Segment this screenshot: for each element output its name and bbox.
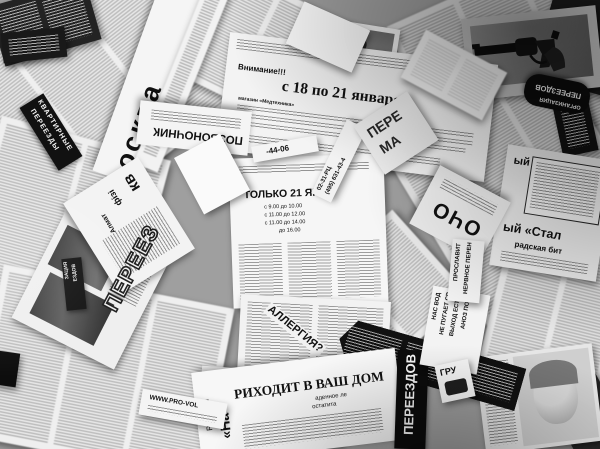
face-portrait-photo	[513, 348, 599, 447]
headline-kv: кв	[121, 171, 144, 195]
text-column	[238, 243, 283, 301]
text-column	[8, 34, 59, 55]
caption-lines	[242, 408, 384, 449]
headline-stal: ый «Стал	[502, 221, 562, 243]
schedule-line: с 11.00 до 12.00	[264, 212, 305, 219]
fake-text-columns	[238, 240, 381, 302]
fragment-vyhod: ВЫХОД ЕСТЬ	[449, 296, 462, 337]
schedule-line: до 16.00	[279, 228, 301, 234]
phone-fragment: -44-06	[266, 144, 290, 156]
ad-box	[524, 156, 600, 225]
dark-blob	[444, 378, 468, 396]
fragment-gru: ГРУ	[439, 366, 457, 378]
newspaper-collage-photo: осква кв фізі Алмат Внимание!!! с 18 по …	[0, 0, 600, 449]
banner-text: ЗАЦИЯ	[64, 261, 71, 279]
schedule-line: с 11.00 до 14.00	[265, 220, 306, 227]
headline-dates: с 18 по 21 января	[281, 79, 403, 109]
newspaper-scrap: ТОЛЬКО 21 ЯНВ с 9.00 до 10.00 с 11.00 до…	[228, 153, 388, 308]
banner-text: ЕЗДОВ	[72, 264, 79, 282]
fragment-ostatita: остатита	[312, 401, 337, 410]
text-column	[287, 241, 332, 299]
fragment-proslav: ПРОСЛАВИТ	[453, 243, 462, 281]
fragment-nervnoe: НЕРВНОЕ ПЕРЕН	[463, 242, 474, 294]
headline-attention: Внимание!!!	[237, 63, 286, 77]
fake-text-columns	[8, 34, 59, 55]
fragment-nas: НАС ВОД	[431, 292, 442, 320]
schedule-line: с 9.00 до 10.00	[264, 204, 302, 211]
banner-text: ПЕРЕЕЗДОВ	[402, 354, 418, 435]
fragment-anoz: АНОЗ ПО	[460, 301, 471, 329]
caption-lines	[530, 162, 600, 217]
newspaper-scrap: ый ый «Стал радская бит	[489, 144, 600, 281]
text-column	[336, 240, 381, 298]
fragment-ma: МА	[377, 132, 403, 156]
fragment-fiz: фізі	[107, 188, 124, 207]
fragment-yi: ый	[513, 155, 531, 168]
headline-vash-dom: РИХОДИТ В ВАШ ДОМ	[233, 369, 384, 401]
fragment-adennoe: аденное ле	[315, 392, 347, 402]
newspaper-scrap: ПРОСЛАВИТ НЕРВНОЕ ПЕРЕН	[447, 239, 484, 304]
